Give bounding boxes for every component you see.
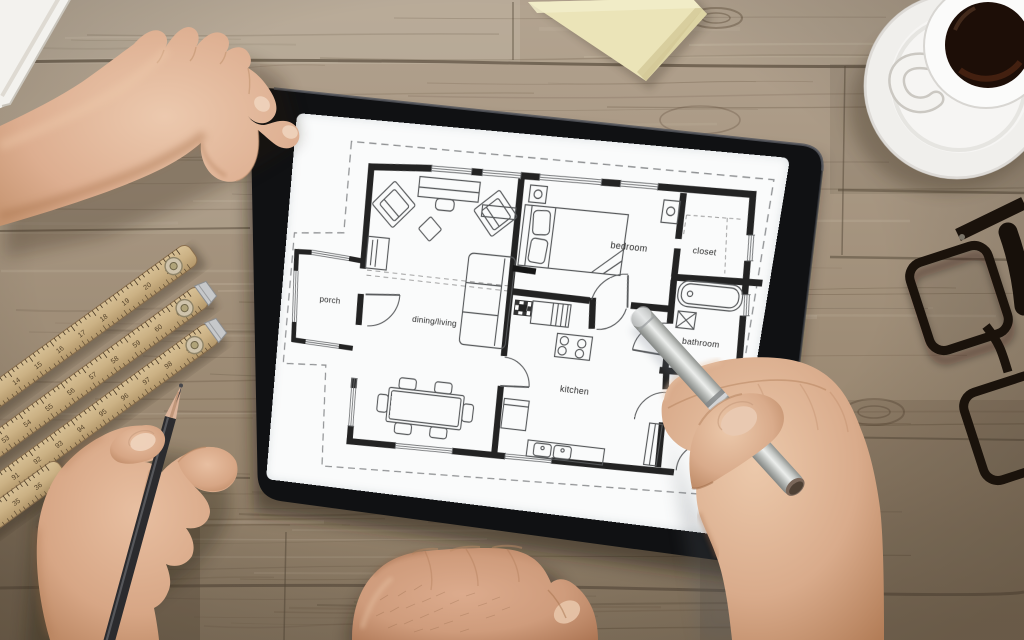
svg-text:porch: porch [319, 294, 341, 306]
svg-text:kitchen: kitchen [559, 384, 589, 397]
svg-text:dining/living: dining/living [412, 314, 458, 329]
svg-text:bedroom: bedroom [610, 240, 648, 254]
svg-text:closet: closet [692, 245, 718, 258]
svg-text:bathroom: bathroom [681, 336, 720, 350]
